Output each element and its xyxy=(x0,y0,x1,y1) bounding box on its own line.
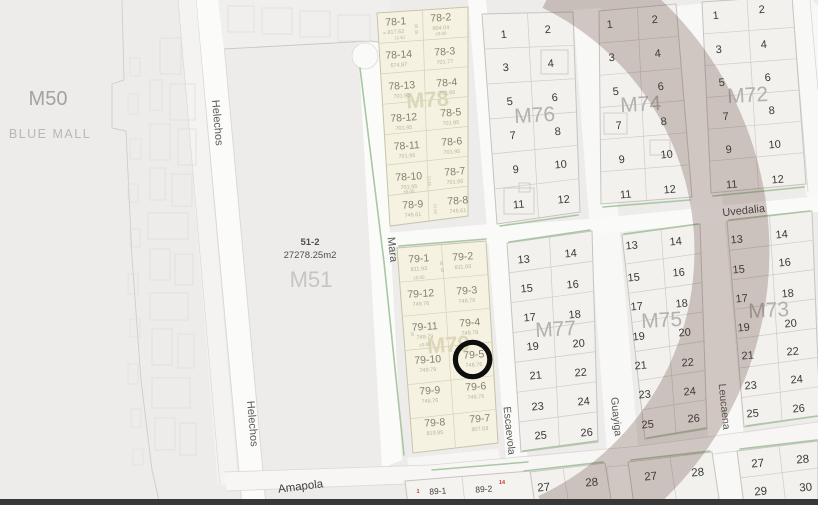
svg-text:701.95: 701.95 xyxy=(438,90,455,97)
svg-text:13: 13 xyxy=(625,240,638,253)
svg-text:748.76: 748.76 xyxy=(467,394,484,401)
svg-text:701.95: 701.95 xyxy=(398,153,415,160)
svg-text:BLUE MALL: BLUE MALL xyxy=(9,127,91,141)
svg-text:811.93: 811.93 xyxy=(411,266,428,273)
svg-text:749.78: 749.78 xyxy=(461,330,478,337)
svg-text:20: 20 xyxy=(784,318,797,331)
svg-text:14: 14 xyxy=(499,480,506,486)
svg-text:17: 17 xyxy=(523,312,536,325)
svg-text:14: 14 xyxy=(669,236,682,249)
svg-text:M76: M76 xyxy=(514,103,556,128)
svg-text:21.45: 21.45 xyxy=(427,176,433,187)
svg-text:7: 7 xyxy=(509,130,516,142)
svg-text:12: 12 xyxy=(771,174,784,187)
svg-text:22: 22 xyxy=(574,367,587,380)
svg-text:9: 9 xyxy=(618,154,625,166)
svg-text:746.61: 746.61 xyxy=(404,212,421,219)
svg-text:3: 3 xyxy=(502,62,509,74)
svg-text:5: 5 xyxy=(612,86,619,98)
svg-text:M51: M51 xyxy=(290,267,333,292)
svg-text:1: 1 xyxy=(712,10,719,22)
svg-text:26: 26 xyxy=(792,403,805,416)
svg-text:17: 17 xyxy=(630,301,643,314)
svg-text:51-2: 51-2 xyxy=(300,237,319,248)
svg-text:16: 16 xyxy=(778,257,791,270)
svg-text:8: 8 xyxy=(768,105,775,117)
svg-text:15: 15 xyxy=(627,272,640,285)
svg-text:78-3: 78-3 xyxy=(434,45,456,58)
svg-text:79-5: 79-5 xyxy=(463,348,485,361)
svg-text:79-1: 79-1 xyxy=(408,252,430,265)
svg-text:701.95: 701.95 xyxy=(443,149,460,156)
svg-text:12: 12 xyxy=(663,184,676,197)
svg-text:78-9: 78-9 xyxy=(402,198,424,211)
svg-text:78-2: 78-2 xyxy=(430,11,452,24)
svg-text:79-6: 79-6 xyxy=(465,380,487,393)
svg-text:78-5: 78-5 xyxy=(440,106,462,119)
svg-text:24: 24 xyxy=(790,374,803,387)
svg-text:89-1: 89-1 xyxy=(429,485,447,496)
svg-text:78-13: 78-13 xyxy=(388,79,416,93)
svg-text:78-10: 78-10 xyxy=(395,170,423,184)
svg-text:749.79: 749.79 xyxy=(419,367,436,374)
svg-text:14: 14 xyxy=(775,229,788,242)
svg-text:11: 11 xyxy=(620,189,632,202)
svg-text:21.45: 21.45 xyxy=(433,204,439,215)
svg-text:±0.00: ±0.00 xyxy=(435,31,447,37)
svg-text:78-7: 78-7 xyxy=(444,165,466,178)
svg-text:811.93: 811.93 xyxy=(455,264,472,271)
svg-text:2: 2 xyxy=(544,24,551,36)
svg-text:79-8: 79-8 xyxy=(424,416,446,429)
svg-text:7: 7 xyxy=(615,120,622,132)
svg-text:807.03: 807.03 xyxy=(471,426,488,433)
svg-text:6: 6 xyxy=(551,92,558,104)
svg-text:M75: M75 xyxy=(641,308,683,333)
svg-text:18: 18 xyxy=(781,288,794,301)
svg-text:27278.25m2: 27278.25m2 xyxy=(284,250,337,261)
svg-text:25: 25 xyxy=(534,430,547,443)
svg-text:748.76: 748.76 xyxy=(465,362,482,369)
svg-text:746.61: 746.61 xyxy=(449,208,466,215)
svg-text:21: 21 xyxy=(529,370,542,383)
svg-text:78-11: 78-11 xyxy=(393,139,420,153)
svg-text:12: 12 xyxy=(557,194,570,207)
svg-text:11.61: 11.61 xyxy=(394,35,406,41)
svg-text:701.95: 701.95 xyxy=(393,93,410,100)
svg-text:78-8: 78-8 xyxy=(447,194,469,207)
svg-text:19: 19 xyxy=(526,341,539,354)
svg-text:±0.00: ±0.00 xyxy=(403,189,415,195)
svg-text:819.85: 819.85 xyxy=(426,430,443,437)
svg-text:±0.00: ±0.00 xyxy=(413,275,425,281)
svg-text:8: 8 xyxy=(554,126,561,138)
svg-text:14: 14 xyxy=(564,248,577,261)
svg-text:5: 5 xyxy=(506,96,513,108)
svg-text:30: 30 xyxy=(799,481,813,494)
svg-text:78-1: 78-1 xyxy=(385,15,407,28)
svg-text:16: 16 xyxy=(566,279,579,292)
svg-text:13: 13 xyxy=(517,254,530,267)
svg-text:18: 18 xyxy=(675,298,688,311)
svg-text:1: 1 xyxy=(500,29,507,41)
svg-text:25: 25 xyxy=(746,408,759,421)
svg-text:29: 29 xyxy=(754,485,768,498)
svg-text:749.76: 749.76 xyxy=(412,301,429,308)
svg-text:27: 27 xyxy=(751,457,765,470)
svg-text:20: 20 xyxy=(572,338,585,351)
svg-text:749.79: 749.79 xyxy=(416,334,433,341)
svg-text:24: 24 xyxy=(577,396,590,409)
svg-text:701.95: 701.95 xyxy=(442,120,459,127)
svg-text:21: 21 xyxy=(634,360,647,373)
svg-text:78-6: 78-6 xyxy=(441,135,463,148)
svg-text:±0.00: ±0.00 xyxy=(419,342,431,348)
svg-text:79-10: 79-10 xyxy=(414,353,442,367)
svg-text:79-12: 79-12 xyxy=(407,287,435,301)
svg-text:28: 28 xyxy=(796,453,810,466)
svg-text:748.76: 748.76 xyxy=(421,398,438,405)
svg-text:78-14: 78-14 xyxy=(385,48,413,62)
svg-text:9: 9 xyxy=(512,164,519,176)
svg-text:10: 10 xyxy=(554,159,567,172)
svg-text:674.87: 674.87 xyxy=(390,62,407,69)
svg-text:89-2: 89-2 xyxy=(475,483,493,494)
svg-text:79-4: 79-4 xyxy=(459,316,481,329)
svg-text:79-2: 79-2 xyxy=(452,250,474,263)
svg-text:28: 28 xyxy=(691,466,705,479)
svg-text:701.77: 701.77 xyxy=(436,59,453,66)
svg-text:23: 23 xyxy=(531,401,544,414)
svg-text:701.95: 701.95 xyxy=(395,125,412,132)
svg-text:18: 18 xyxy=(568,309,581,322)
svg-text:3: 3 xyxy=(715,44,722,56)
svg-text:26: 26 xyxy=(580,427,593,440)
svg-text:11: 11 xyxy=(513,199,525,212)
svg-text:4: 4 xyxy=(547,58,554,70)
svg-text:2: 2 xyxy=(758,4,765,16)
svg-text:M50: M50 xyxy=(29,88,68,110)
svg-text:79-3: 79-3 xyxy=(456,284,478,297)
svg-text:19: 19 xyxy=(632,331,645,344)
svg-text:10: 10 xyxy=(660,149,673,162)
svg-text:78-12: 78-12 xyxy=(390,111,418,125)
svg-text:1: 1 xyxy=(416,489,419,495)
svg-text:16: 16 xyxy=(672,267,685,280)
svg-text:23: 23 xyxy=(744,380,757,393)
svg-text:79-9: 79-9 xyxy=(419,384,441,397)
svg-text:10: 10 xyxy=(768,139,781,152)
svg-text:701.95: 701.95 xyxy=(446,179,463,186)
svg-text:22: 22 xyxy=(786,346,799,359)
svg-text:23: 23 xyxy=(638,389,651,402)
svg-text:748.76: 748.76 xyxy=(458,298,475,305)
svg-text:78-4: 78-4 xyxy=(436,76,458,89)
svg-text:15: 15 xyxy=(520,283,533,296)
svg-text:4: 4 xyxy=(760,39,767,51)
svg-text:6: 6 xyxy=(764,72,771,84)
svg-text:79-7: 79-7 xyxy=(469,412,491,425)
